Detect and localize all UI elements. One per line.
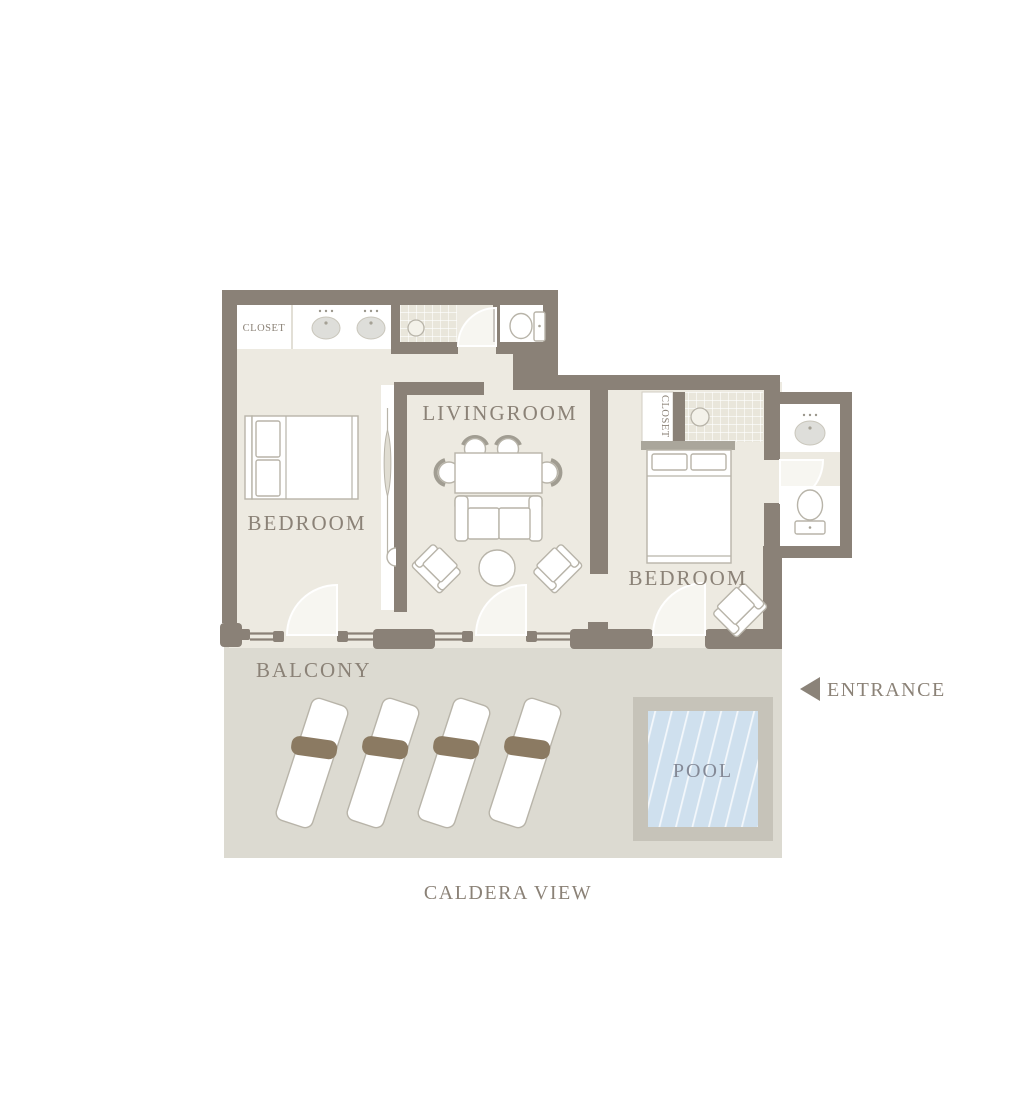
bed-icon xyxy=(641,441,735,563)
closet-top-label: CLOSET xyxy=(243,323,286,334)
balcony-label: BALCONY xyxy=(256,658,372,682)
floor-plan-page: POOL ENTRANCE CLOSET CLOSET BEDROOM LIVI… xyxy=(0,0,1024,1112)
toilet-icon xyxy=(510,312,545,341)
shower-drain-icon xyxy=(691,408,709,426)
entrance-marker: ENTRANCE xyxy=(800,677,946,701)
pool-area: POOL xyxy=(633,697,773,841)
caldera-view-label: CALDERA VIEW xyxy=(424,882,592,904)
sofa-icon xyxy=(455,496,542,541)
entrance-arrow-icon xyxy=(800,677,820,701)
livingroom-label: LIVINGROOM xyxy=(422,401,577,425)
dining-table-icon xyxy=(455,453,542,493)
closet-right-label: CLOSET xyxy=(659,395,670,438)
entrance-label: ENTRANCE xyxy=(827,679,946,701)
floor-plan-drawing: POOL ENTRANCE CLOSET CLOSET BEDROOM LIVI… xyxy=(0,0,1024,1112)
bedroom-right-label: BEDROOM xyxy=(628,566,747,590)
pool-label: POOL xyxy=(673,760,733,782)
shower-drain-icon xyxy=(408,320,424,336)
bed-icon xyxy=(245,416,358,499)
coffee-table-icon xyxy=(479,550,515,586)
bedroom-left-label: BEDROOM xyxy=(247,511,366,535)
toilet-icon xyxy=(795,490,825,534)
